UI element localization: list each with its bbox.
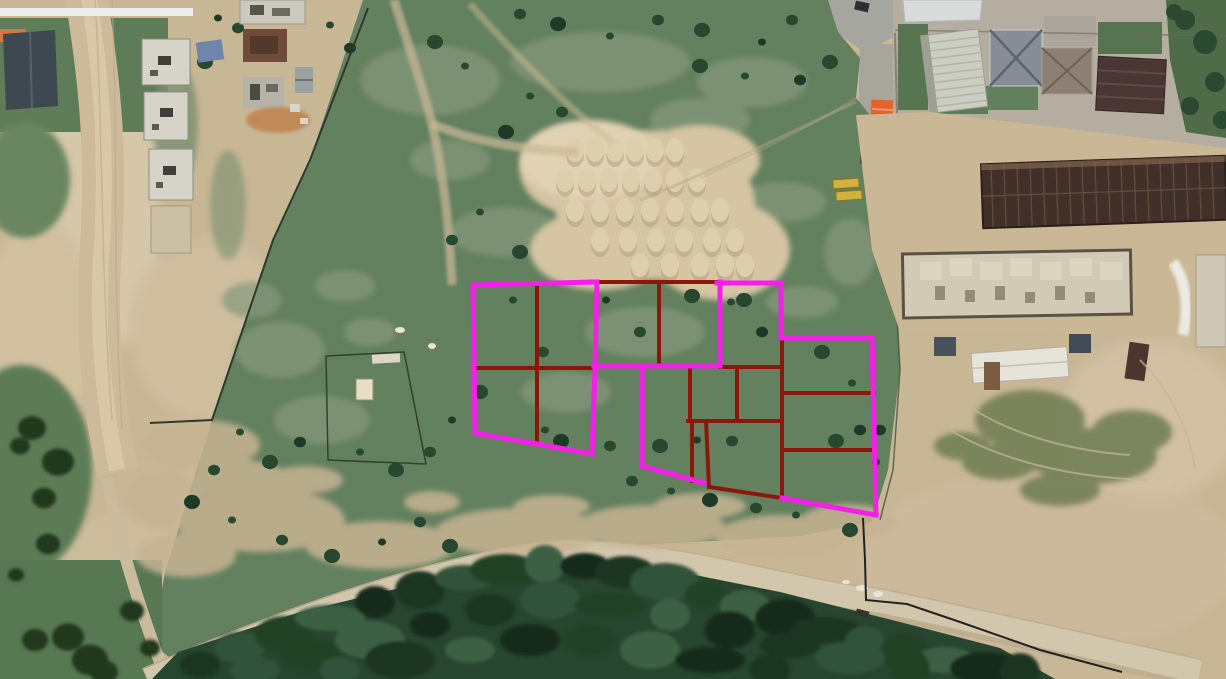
pen-trough [372, 353, 400, 363]
satellite-map-view[interactable] [0, 0, 1226, 679]
dark-shed [934, 337, 956, 356]
pen-hut [356, 379, 373, 400]
brown-hip-roof-house [1042, 48, 1092, 94]
yellow-vehicle [833, 178, 860, 189]
brown-annex [984, 362, 1000, 390]
satellite-imagery [0, 0, 1226, 679]
yellow-vehicle [836, 190, 863, 201]
concrete-slab-right [1196, 255, 1226, 347]
excavated-foundation [902, 250, 1131, 318]
dark-maroon-building [1096, 56, 1167, 113]
gray-building [243, 77, 284, 108]
white-roof-building [903, 0, 982, 22]
dark-blue-shed [1069, 334, 1091, 353]
blue-roof-shed [196, 39, 225, 62]
gray-hip-roof-house [990, 30, 1042, 86]
warehouse [921, 29, 988, 113]
rebar-foundation-grid [981, 156, 1226, 228]
white-wall-strip [0, 8, 193, 16]
